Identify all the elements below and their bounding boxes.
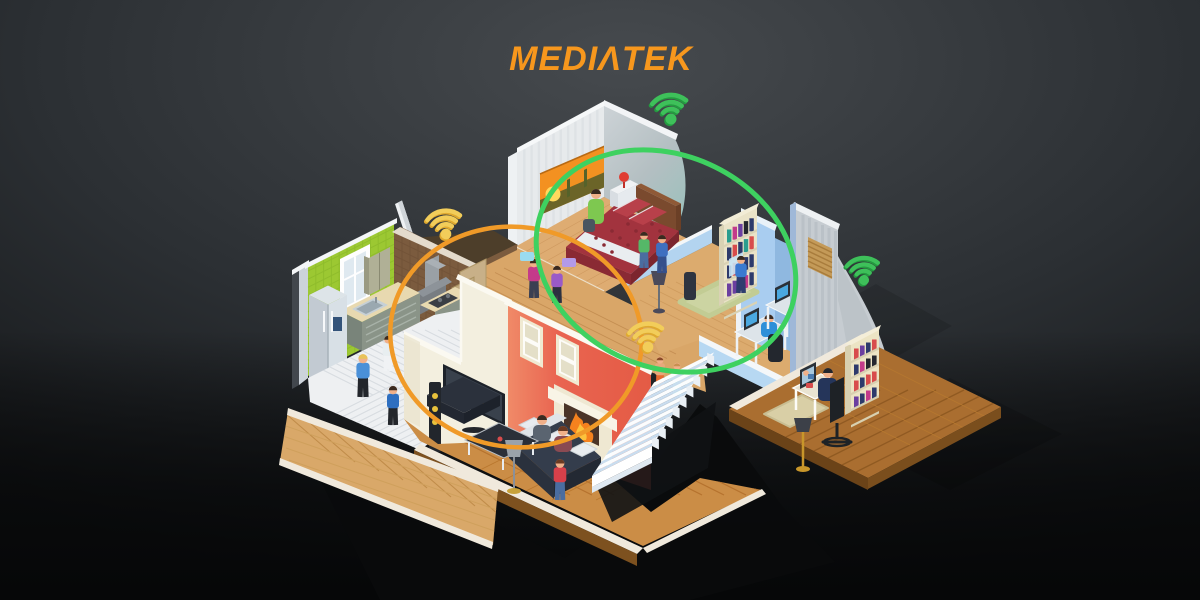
svg-text:MEDIΛTEK: MEDIΛTEK (509, 40, 694, 78)
